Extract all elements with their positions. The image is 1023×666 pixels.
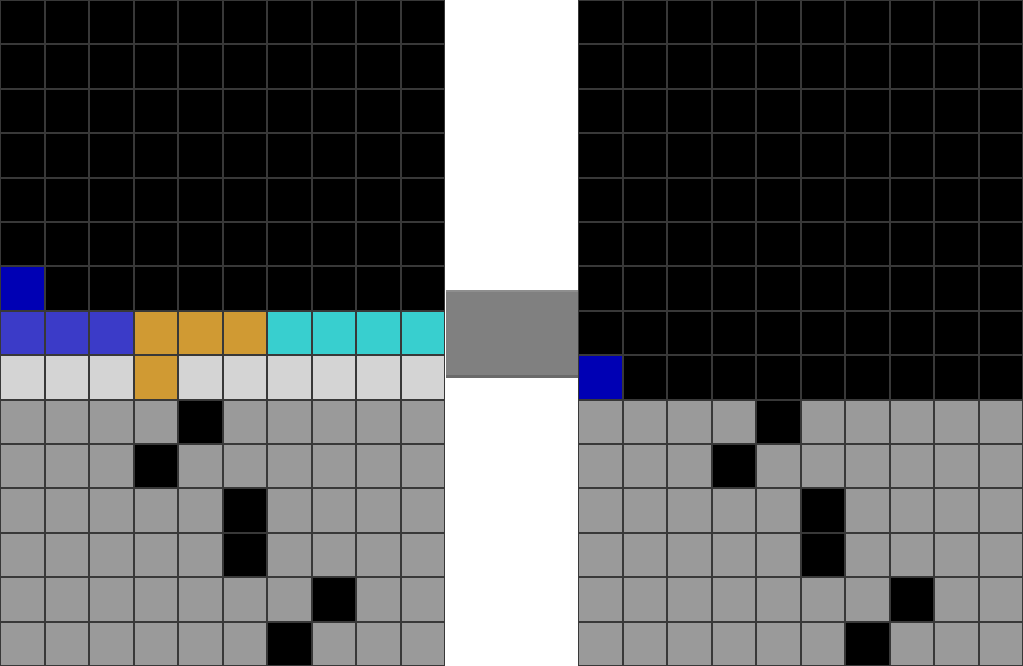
grid-cell [979, 311, 1023, 355]
grid-cell [623, 400, 668, 444]
grid-cell [267, 0, 312, 44]
grid-cell [979, 222, 1023, 266]
grid-cell [845, 311, 890, 355]
grid-cell [890, 488, 935, 532]
grid-cell [89, 622, 134, 666]
grid-cell [756, 577, 801, 621]
grid-cell [45, 222, 90, 266]
grid-cell [312, 577, 357, 621]
grid-cell [845, 533, 890, 577]
grid-cell [0, 311, 45, 355]
grid-cell [134, 0, 179, 44]
grid-cell [756, 400, 801, 444]
grid-cell [134, 488, 179, 532]
grid-cell [178, 0, 223, 44]
grid-cell [134, 89, 179, 133]
grid-cell [312, 311, 357, 355]
grid-cell [312, 444, 357, 488]
grid-cell [89, 444, 134, 488]
grid-cell [89, 89, 134, 133]
grid-cell [712, 533, 757, 577]
grid-cell [356, 0, 401, 44]
grid-cell [578, 533, 623, 577]
grid-cell [578, 444, 623, 488]
grid-cell [712, 266, 757, 310]
grid-cell [89, 311, 134, 355]
grid-cell [623, 266, 668, 310]
grid-cell [979, 533, 1023, 577]
grid-cell [89, 44, 134, 88]
grid-cell [45, 355, 90, 399]
grid-cell [667, 89, 712, 133]
grid-cell [934, 577, 979, 621]
grid-cell [890, 577, 935, 621]
grid-cell [0, 44, 45, 88]
grid-cell [979, 0, 1023, 44]
grid-cell [223, 577, 268, 621]
grid-cell [267, 44, 312, 88]
grid-cell [801, 311, 846, 355]
grid-cell [0, 622, 45, 666]
grid-cell [223, 444, 268, 488]
grid-cell [756, 222, 801, 266]
grid-cell [801, 622, 846, 666]
grid-cell [756, 44, 801, 88]
grid-cell [356, 444, 401, 488]
grid-cell [623, 533, 668, 577]
grid-cell [356, 355, 401, 399]
grid-cell [667, 533, 712, 577]
grid-cell [756, 133, 801, 177]
grid-cell [801, 444, 846, 488]
grid-cell [267, 266, 312, 310]
grid-cell [845, 444, 890, 488]
grid-cell [0, 0, 45, 44]
grid-cell [356, 577, 401, 621]
grid-cell [756, 0, 801, 44]
grid-cell [890, 222, 935, 266]
grid-cell [45, 533, 90, 577]
grid-cell [356, 133, 401, 177]
grid-cell [134, 400, 179, 444]
grid-cell [45, 400, 90, 444]
grid-cell [979, 488, 1023, 532]
grid-cell [178, 400, 223, 444]
grid-cell [667, 311, 712, 355]
grid-cell [267, 222, 312, 266]
grid-cell [667, 133, 712, 177]
grid-cell [178, 488, 223, 532]
grid-cell [89, 400, 134, 444]
grid-cell [934, 533, 979, 577]
grid-cell [0, 577, 45, 621]
grid-cell [845, 400, 890, 444]
grid-cell [578, 89, 623, 133]
grid-cell [667, 178, 712, 222]
grid-cell [667, 577, 712, 621]
grid-cell [223, 0, 268, 44]
right-grid [578, 0, 1023, 666]
grid-cell [89, 533, 134, 577]
grid-cell [979, 622, 1023, 666]
grid-cell [223, 533, 268, 577]
grid-cell [979, 89, 1023, 133]
grid-cell [934, 355, 979, 399]
grid-cell [89, 577, 134, 621]
grid-cell [712, 0, 757, 44]
grid-cell [312, 622, 357, 666]
grid-cell [267, 400, 312, 444]
grid-cell [623, 444, 668, 488]
grid-cell [223, 488, 268, 532]
grid-cell [89, 488, 134, 532]
grid-cell [223, 44, 268, 88]
grid-cell [890, 44, 935, 88]
grid-cell [401, 266, 446, 310]
grid-cell [178, 222, 223, 266]
grid-cell [578, 0, 623, 44]
grid-cell [45, 89, 90, 133]
grid-cell [356, 44, 401, 88]
grid-cell [267, 133, 312, 177]
grid-cell [667, 622, 712, 666]
grid-cell [801, 89, 846, 133]
grid-cell [401, 44, 446, 88]
grid-cell [578, 133, 623, 177]
grid-cell [89, 355, 134, 399]
grid-cell [934, 622, 979, 666]
grid-cell [934, 0, 979, 44]
grid-cell [401, 488, 446, 532]
grid-cell [267, 488, 312, 532]
grid-cell [578, 44, 623, 88]
grid-cell [267, 622, 312, 666]
grid-cell [712, 222, 757, 266]
grid-cell [45, 444, 90, 488]
grid-cell [267, 89, 312, 133]
grid-cell [623, 178, 668, 222]
grid-cell [356, 89, 401, 133]
grid-cell [89, 133, 134, 177]
grid-cell [45, 178, 90, 222]
grid-cell [845, 577, 890, 621]
grid-cell [578, 178, 623, 222]
grid-cell [712, 622, 757, 666]
grid-cell [578, 222, 623, 266]
grid-cell [801, 488, 846, 532]
grid-cell [223, 400, 268, 444]
grid-cell [934, 400, 979, 444]
grid-cell [934, 89, 979, 133]
grid-cell [890, 355, 935, 399]
grid-cell [667, 44, 712, 88]
grid-cell [712, 89, 757, 133]
grid-cell [578, 577, 623, 621]
grid-cell [178, 44, 223, 88]
grid-cell [979, 577, 1023, 621]
grid-cell [623, 355, 668, 399]
grid-cell [0, 266, 45, 310]
grid-cell [623, 89, 668, 133]
grid-cell [223, 311, 268, 355]
grid-cell [934, 266, 979, 310]
grid-cell [667, 355, 712, 399]
grid-cell [134, 622, 179, 666]
grid-cell [712, 400, 757, 444]
grid-cell [356, 311, 401, 355]
grid-cell [845, 0, 890, 44]
grid-cell [845, 622, 890, 666]
grid-cell [45, 577, 90, 621]
grid-cell [134, 222, 179, 266]
grid-cell [401, 444, 446, 488]
grid-cell [312, 400, 357, 444]
grid-cell [890, 178, 935, 222]
grid-cell [134, 266, 179, 310]
grid-cell [267, 355, 312, 399]
grid-cell [890, 311, 935, 355]
grid-cell [401, 0, 446, 44]
grid-cell [712, 355, 757, 399]
grid-cell [267, 311, 312, 355]
grid-cell [845, 44, 890, 88]
grid-cell [578, 400, 623, 444]
grid-cell [712, 444, 757, 488]
left-grid [0, 0, 445, 666]
grid-cell [356, 266, 401, 310]
grid-cell [0, 488, 45, 532]
grid-cell [623, 222, 668, 266]
grid-cell [89, 0, 134, 44]
grid-cell [934, 311, 979, 355]
grid-cell [178, 577, 223, 621]
grid-cell [401, 178, 446, 222]
grid-cell [578, 622, 623, 666]
grid-cell [178, 444, 223, 488]
grid-cell [712, 488, 757, 532]
grid-cell [845, 488, 890, 532]
grid-cell [845, 266, 890, 310]
grid-cell [401, 577, 446, 621]
grid-cell [312, 133, 357, 177]
grid-cell [578, 266, 623, 310]
grid-cell [667, 400, 712, 444]
grid-cell [134, 355, 179, 399]
grid-cell [845, 355, 890, 399]
grid-cell [267, 178, 312, 222]
grid-cell [667, 222, 712, 266]
grid-cell [979, 44, 1023, 88]
puzzle-stage [0, 0, 1023, 666]
grid-cell [712, 178, 757, 222]
grid-cell [667, 266, 712, 310]
grid-cell [0, 178, 45, 222]
grid-cell [0, 222, 45, 266]
grid-cell [979, 355, 1023, 399]
grid-cell [712, 577, 757, 621]
grid-cell [401, 400, 446, 444]
grid-cell [890, 266, 935, 310]
grid-cell [401, 133, 446, 177]
grid-cell [801, 0, 846, 44]
grid-cell [979, 266, 1023, 310]
grid-cell [178, 89, 223, 133]
connector-block [446, 290, 578, 378]
grid-cell [401, 355, 446, 399]
grid-cell [134, 311, 179, 355]
grid-cell [890, 89, 935, 133]
grid-cell [934, 444, 979, 488]
grid-cell [223, 222, 268, 266]
grid-cell [578, 488, 623, 532]
grid-cell [45, 311, 90, 355]
grid-cell [223, 178, 268, 222]
grid-cell [401, 533, 446, 577]
grid-cell [223, 133, 268, 177]
grid-cell [223, 622, 268, 666]
grid-cell [45, 133, 90, 177]
grid-cell [223, 355, 268, 399]
grid-cell [756, 622, 801, 666]
grid-cell [134, 133, 179, 177]
grid-cell [178, 311, 223, 355]
grid-cell [845, 222, 890, 266]
grid-cell [979, 400, 1023, 444]
grid-cell [223, 89, 268, 133]
grid-cell [890, 133, 935, 177]
grid-cell [134, 178, 179, 222]
grid-cell [890, 444, 935, 488]
grid-cell [89, 178, 134, 222]
grid-cell [934, 178, 979, 222]
grid-cell [756, 266, 801, 310]
grid-cell [89, 222, 134, 266]
grid-cell [801, 133, 846, 177]
grid-cell [45, 44, 90, 88]
grid-cell [979, 178, 1023, 222]
grid-cell [623, 133, 668, 177]
grid-cell [356, 222, 401, 266]
grid-cell [356, 488, 401, 532]
grid-cell [801, 222, 846, 266]
grid-cell [756, 311, 801, 355]
grid-cell [578, 355, 623, 399]
grid-cell [801, 533, 846, 577]
grid-cell [756, 488, 801, 532]
grid-cell [979, 133, 1023, 177]
grid-cell [356, 622, 401, 666]
grid-cell [134, 533, 179, 577]
grid-cell [0, 400, 45, 444]
grid-cell [801, 355, 846, 399]
grid-cell [312, 355, 357, 399]
grid-cell [312, 222, 357, 266]
grid-cell [134, 444, 179, 488]
grid-cell [45, 266, 90, 310]
grid-cell [623, 577, 668, 621]
grid-cell [756, 355, 801, 399]
grid-cell [356, 178, 401, 222]
grid-cell [934, 222, 979, 266]
grid-cell [845, 89, 890, 133]
grid-cell [312, 178, 357, 222]
grid-cell [756, 533, 801, 577]
grid-cell [623, 44, 668, 88]
grid-cell [667, 444, 712, 488]
grid-cell [934, 133, 979, 177]
grid-cell [712, 133, 757, 177]
grid-cell [312, 266, 357, 310]
grid-cell [89, 266, 134, 310]
grid-cell [623, 0, 668, 44]
grid-cell [979, 444, 1023, 488]
grid-cell [401, 622, 446, 666]
grid-cell [0, 444, 45, 488]
grid-cell [312, 44, 357, 88]
grid-cell [178, 266, 223, 310]
grid-cell [623, 488, 668, 532]
grid-cell [0, 355, 45, 399]
grid-cell [0, 533, 45, 577]
grid-cell [45, 488, 90, 532]
grid-cell [756, 89, 801, 133]
grid-cell [401, 89, 446, 133]
grid-cell [356, 533, 401, 577]
grid-cell [890, 400, 935, 444]
grid-cell [890, 0, 935, 44]
grid-cell [623, 622, 668, 666]
grid-cell [312, 0, 357, 44]
grid-cell [312, 533, 357, 577]
grid-cell [401, 222, 446, 266]
grid-cell [178, 178, 223, 222]
grid-cell [712, 44, 757, 88]
grid-cell [45, 622, 90, 666]
grid-cell [756, 178, 801, 222]
grid-cell [312, 488, 357, 532]
grid-cell [756, 444, 801, 488]
grid-cell [178, 133, 223, 177]
grid-cell [934, 44, 979, 88]
grid-cell [845, 178, 890, 222]
grid-cell [134, 577, 179, 621]
grid-cell [801, 400, 846, 444]
grid-cell [623, 311, 668, 355]
grid-cell [934, 488, 979, 532]
grid-cell [801, 44, 846, 88]
grid-cell [667, 488, 712, 532]
grid-cell [0, 133, 45, 177]
grid-cell [890, 533, 935, 577]
grid-cell [401, 311, 446, 355]
grid-cell [801, 178, 846, 222]
grid-cell [223, 266, 268, 310]
grid-cell [801, 577, 846, 621]
grid-cell [267, 533, 312, 577]
grid-cell [356, 400, 401, 444]
grid-cell [134, 44, 179, 88]
grid-cell [312, 89, 357, 133]
grid-cell [890, 622, 935, 666]
grid-cell [845, 133, 890, 177]
grid-cell [178, 622, 223, 666]
grid-cell [267, 577, 312, 621]
grid-cell [267, 444, 312, 488]
grid-cell [578, 311, 623, 355]
grid-cell [667, 0, 712, 44]
grid-cell [178, 533, 223, 577]
grid-cell [0, 89, 45, 133]
